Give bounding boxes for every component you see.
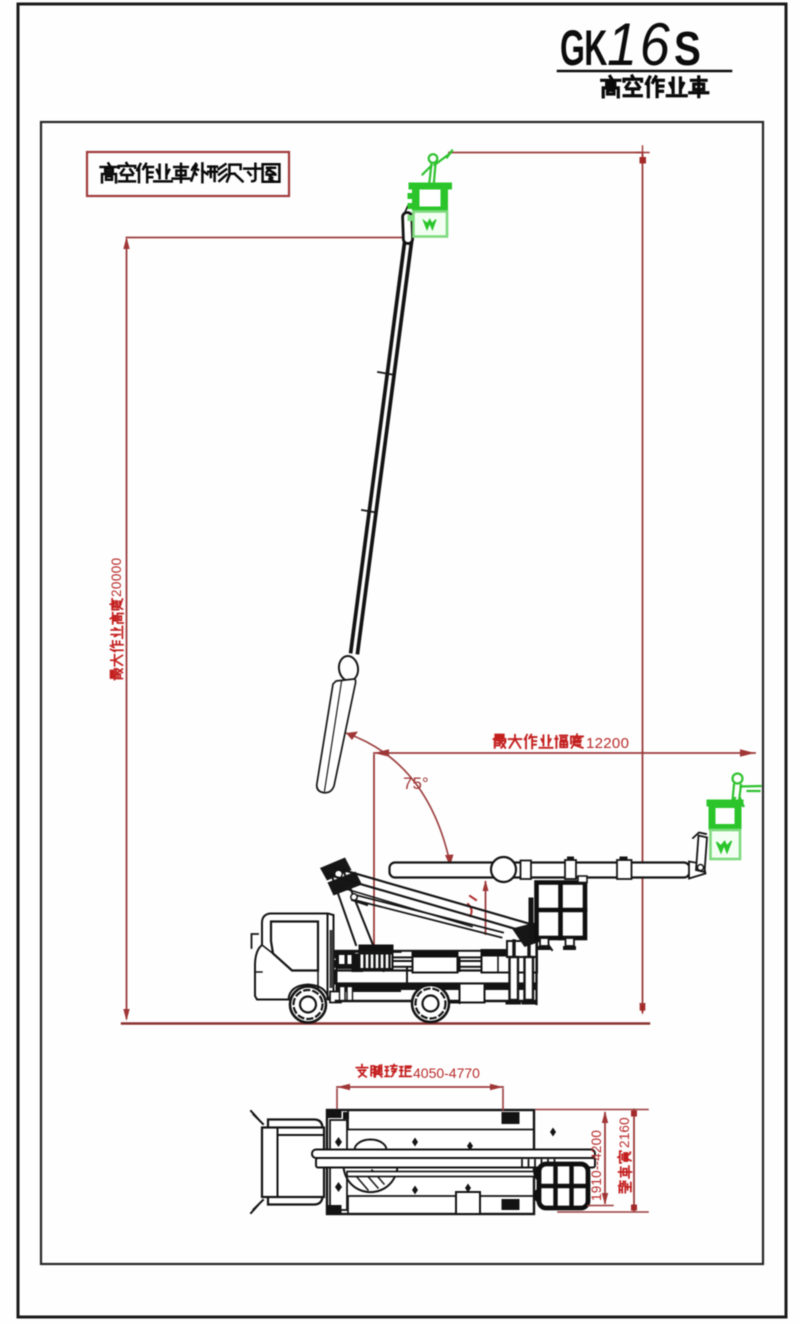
svg-text:12200: 12200 (586, 735, 629, 752)
svg-text:75°: 75° (403, 774, 429, 793)
svg-text:16: 16 (607, 11, 672, 78)
svg-text:S: S (674, 23, 701, 76)
svg-text:2160: 2160 (617, 1117, 632, 1148)
svg-text:1910--4200: 1910--4200 (589, 1130, 604, 1201)
svg-text:4050-4770: 4050-4770 (413, 1065, 480, 1081)
svg-text:20000: 20000 (109, 557, 124, 597)
svg-text:GK: GK (560, 20, 607, 76)
